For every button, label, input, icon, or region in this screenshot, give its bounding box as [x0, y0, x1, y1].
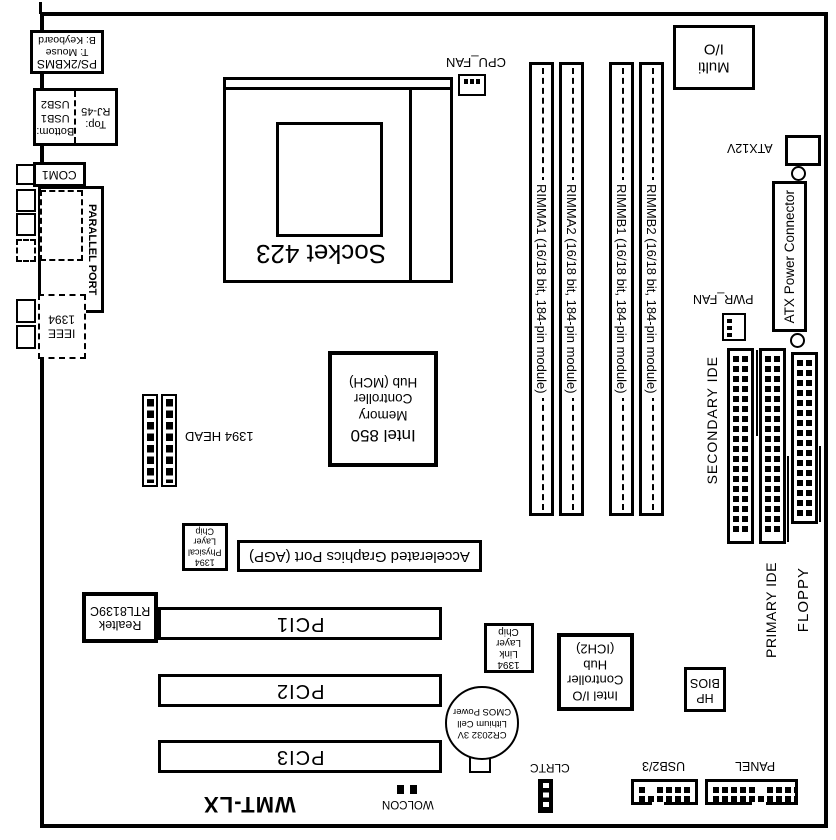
atx12v-connector: [785, 135, 821, 166]
atx12v-label-box: ATX12V: [718, 139, 782, 156]
cpu-fan-header: [458, 74, 486, 96]
usb2-label: USB2: [41, 97, 70, 110]
panel-label-box: PANEL: [728, 758, 782, 774]
ps2-port: PS/2KBMS T: Mouse B: Keyboard: [30, 30, 104, 74]
agp-slot: Accelerated Graphics Port (AGP): [237, 540, 482, 572]
phy-1394-line2: Physical: [188, 547, 222, 557]
pin-column: [774, 356, 780, 536]
com1-label: COM1: [42, 168, 77, 182]
pci-slot-2: PCI2: [158, 674, 442, 707]
parallel-side-block-3: [16, 239, 36, 262]
multi-io-line1: Multi: [698, 58, 730, 76]
pci-slot-3-label: PCI3: [276, 745, 324, 768]
parallel-side-block-1: [16, 189, 36, 212]
floppy-connector: [791, 352, 818, 524]
clrtc-label: CLRTC: [530, 761, 570, 775]
parallel-port-inner: [40, 190, 83, 261]
pin-row: [713, 787, 796, 793]
rimm-slot-3-label: RIMMB1 (16/18 bit, 184-pin module): [614, 180, 629, 398]
rimm-slot-4: RIMMB2 (16/18 bit, 184-pin module): [639, 62, 664, 516]
ieee1394-side-block-1: [16, 299, 36, 323]
cpu-socket-label: Socket 423: [256, 238, 386, 269]
usb23-missing-pin: [647, 787, 654, 793]
usb-top-cell: Top: RJ-45: [77, 91, 116, 143]
usb-top-label: Top:: [85, 117, 106, 130]
phy-1394-chip: 1394 Physical Layer Chip: [182, 523, 228, 571]
rimm-slot-1: RIMMA1 (16/18 bit, 184-pin module): [529, 62, 554, 516]
secondary-ide-connector: [727, 348, 754, 544]
battery-line2: Lithium Cell: [453, 717, 511, 728]
clrtc-label-box: CLRTC: [524, 760, 576, 776]
motherboard-layout-diagram: PS/2KBMS T: Mouse B: Keyboard Top: RJ-45…: [0, 0, 836, 840]
pwr-fan-label: PWR_FAN: [693, 292, 753, 306]
atx12v-label: ATX12V: [727, 141, 773, 155]
realtek-line1: Realtek: [90, 618, 150, 632]
hp-bios-line1: HP: [690, 690, 720, 705]
atx-power-mount-bottom: [790, 333, 805, 348]
primary-ide-label-box: PRIMARY IDE: [761, 554, 781, 666]
parallel-port-label-box: PARALLEL PORT: [82, 188, 102, 311]
usb23-header: [631, 779, 698, 805]
phy-1394-line4: Chip: [188, 526, 222, 536]
pwr-fan-header: [722, 313, 746, 341]
ich2-line1: Intel I/O: [567, 688, 623, 704]
ieee1394-line1: IEEE: [48, 327, 75, 341]
pci-slot-3: PCI3: [158, 740, 442, 773]
hp-bios-line2: BIOS: [690, 675, 720, 690]
com1-port: COM1: [33, 162, 86, 187]
ich2-chip: Intel I/O Controller Hub (ICH2): [557, 633, 634, 711]
usb23-label-box: USB2/3: [634, 758, 694, 774]
atx-power-label: ATX Power Connector: [782, 190, 797, 323]
floppy-label: FLOPPY: [795, 567, 812, 632]
ieee1394-line2: 1394: [48, 312, 75, 326]
multi-io-chip: Multi I/O: [673, 25, 755, 90]
ieee1394-side-block-2: [16, 325, 36, 349]
ich2-line4: (ICH2): [567, 641, 623, 657]
link-1394-line4: Chip: [496, 626, 521, 637]
rimm-slot-2: RIMMA2 (16/18 bit, 184-pin module): [559, 62, 584, 516]
cpu-fan-label-box: CPU_FAN: [437, 54, 515, 70]
ich2-line3: Hub: [567, 656, 623, 672]
ps2-port-name: PS/2KBMS: [33, 57, 101, 70]
ps2-bottom-label: B: Keyboard: [33, 34, 101, 46]
pin-column: [147, 399, 154, 483]
secondary-ide-label-box: SECONDARY IDE: [702, 346, 722, 494]
phy-1394-line3: Layer: [188, 537, 222, 547]
head-1394-label: 1394 HEAD: [185, 429, 254, 444]
board-name-box: WMT-LX: [188, 791, 310, 817]
parallel-port-label: PARALLEL PORT: [86, 204, 98, 295]
rj45-label: RJ-45: [81, 104, 110, 117]
pin-column: [806, 360, 812, 516]
head-1394-column-1: [142, 394, 158, 487]
clrtc-jumper-pins: [543, 783, 549, 810]
usb-port-divider: [75, 91, 77, 143]
ieee1394-port: IEEE 1394: [38, 294, 86, 359]
pin-row: [639, 796, 693, 802]
cmos-battery: CR2032 3V Lithium Cell CMOS Power: [445, 686, 519, 760]
link-1394-chip: 1394 Link Layer Chip: [484, 623, 534, 673]
agp-slot-label: Accelerated Graphics Port (AGP): [249, 548, 470, 565]
mch-line2: Memory: [349, 406, 417, 422]
cpu-fan-label: CPU_FAN: [446, 55, 506, 70]
pwr-fan-pins: [727, 319, 732, 337]
pci-slot-2-label: PCI2: [276, 679, 324, 702]
head-1394-label-box: 1394 HEAD: [175, 428, 263, 445]
realtek-line2: RTL8139C: [90, 603, 150, 617]
pci-slot-1: PCI1: [158, 607, 442, 640]
cpu-fan-pins: [464, 79, 480, 84]
clrtc-jumper: [538, 779, 553, 813]
pwr-fan-label-box: PWR_FAN: [688, 290, 758, 307]
floppy-keyline: [819, 446, 821, 522]
board-edge-tick: [39, 2, 42, 14]
usb23-label: USB2/3: [642, 759, 685, 773]
rimm-slot-2-label: RIMMA2 (16/18 bit, 184-pin module): [564, 180, 579, 398]
usb-bottom-cell: Bottom: USB1 USB2: [36, 91, 75, 143]
mch-line3: Controller: [349, 390, 417, 406]
hp-bios-chip: HP BIOS: [684, 667, 726, 712]
board-name: WMT-LX: [203, 791, 296, 817]
usb1-label: USB1: [41, 110, 70, 123]
realtek-lan-chip: Realtek RTL8139C: [82, 592, 158, 643]
atx-power-mount-top: [791, 166, 806, 181]
rimm-slot-1-label: RIMMA1 (16/18 bit, 184-pin module): [534, 180, 549, 398]
pin-column: [797, 360, 803, 516]
usb-bottom-label: Bottom:: [36, 124, 74, 137]
pin-column: [742, 356, 748, 536]
rimm-slot-3: RIMMB1 (16/18 bit, 184-pin module): [609, 62, 634, 516]
pin-column: [765, 356, 771, 536]
atx-power-connector: ATX Power Connector: [772, 181, 807, 332]
panel-notch: [752, 802, 766, 805]
parallel-side-block-2: [16, 213, 36, 236]
pin-column: [166, 399, 173, 483]
ps2-top-label: T: Mouse: [33, 45, 101, 57]
panel-label: PANEL: [735, 759, 775, 773]
battery-line3: CMOS Power: [453, 706, 511, 717]
primary-ide-label: PRIMARY IDE: [763, 562, 779, 658]
link-1394-line3: Layer: [496, 637, 521, 648]
primary-ide-connector: [759, 348, 786, 544]
wolcon-label: WOLCON: [382, 798, 434, 810]
rimm-slot-4-label: RIMMB2 (16/18 bit, 184-pin module): [644, 180, 659, 398]
pin-column: [733, 356, 739, 536]
phy-1394-line1: 1394: [188, 557, 222, 567]
primary-ide-keyline: [787, 456, 789, 542]
secondary-ide-label: SECONDARY IDE: [704, 356, 720, 484]
usb-rj45-port: Top: RJ-45 Bottom: USB1 USB2: [33, 88, 118, 146]
wolcon-label-box: WOLCON: [381, 796, 435, 811]
cpu-socket-die: [276, 122, 383, 237]
mch-line4: Hub (MCH): [349, 374, 417, 390]
battery-line1: CR2032 3V: [453, 729, 511, 740]
wolcon-pins: [397, 785, 417, 794]
link-1394-line1: 1394: [496, 659, 521, 670]
link-1394-line2: Link: [496, 648, 521, 659]
panel-missing-pin: [757, 787, 764, 793]
cpu-socket-label-box: Socket 423: [228, 238, 414, 268]
floppy-label-box: FLOPPY: [793, 554, 813, 646]
secondary-ide-keyline: [756, 350, 758, 436]
mch-line1: Intel 850: [349, 424, 417, 444]
usb23-notch: [652, 802, 664, 805]
cpu-socket-band-line: [226, 87, 450, 90]
mch-chip: Intel 850 Memory Controller Hub (MCH): [328, 351, 438, 467]
ich2-line2: Controller: [567, 672, 623, 688]
pci-slot-1-label: PCI1: [276, 612, 324, 635]
multi-io-line2: I/O: [698, 40, 730, 58]
